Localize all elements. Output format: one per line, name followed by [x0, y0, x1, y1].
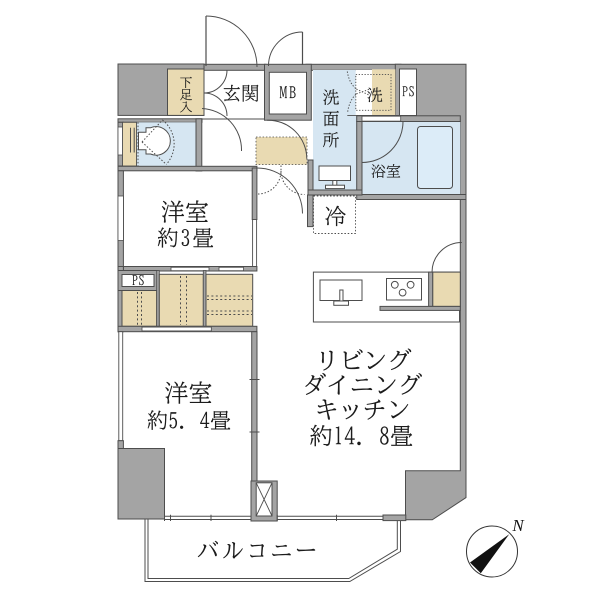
- svg-text:N: N: [511, 516, 525, 535]
